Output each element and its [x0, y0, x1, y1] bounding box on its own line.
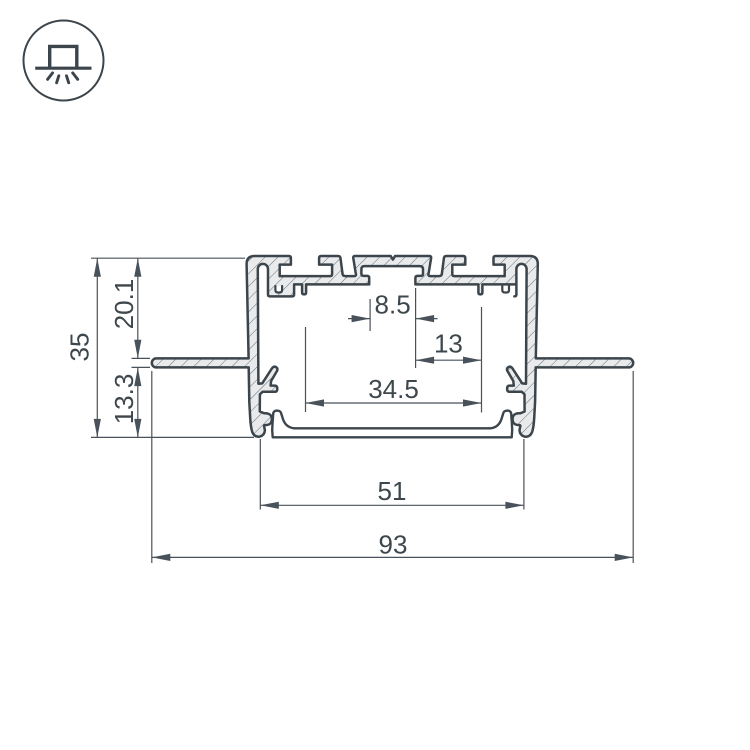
- svg-text:35: 35: [65, 333, 95, 362]
- svg-text:51: 51: [378, 476, 407, 506]
- svg-text:93: 93: [379, 529, 408, 559]
- svg-text:8.5: 8.5: [375, 290, 411, 320]
- svg-text:13.3: 13.3: [109, 374, 139, 425]
- svg-text:20.1: 20.1: [109, 279, 139, 330]
- svg-text:13: 13: [434, 329, 463, 359]
- svg-text:34.5: 34.5: [368, 374, 419, 404]
